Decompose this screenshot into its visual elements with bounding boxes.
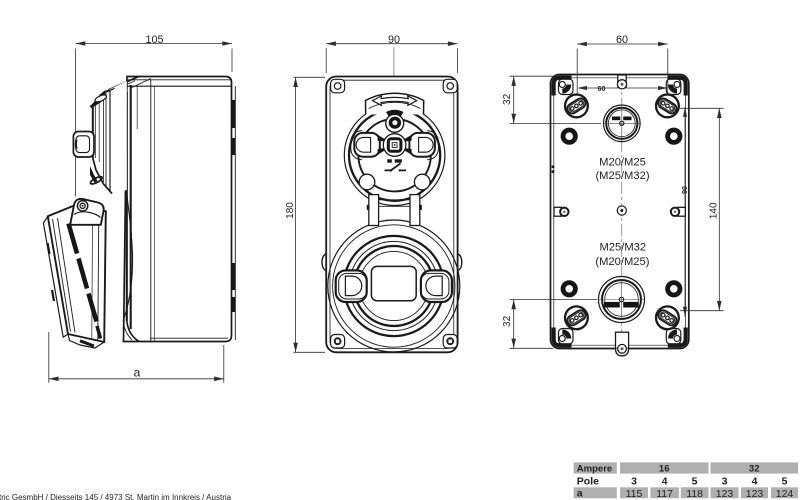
svg-text:4: 4 [752, 475, 758, 487]
svg-text:5: 5 [692, 475, 698, 487]
svg-text:4: 4 [662, 475, 668, 487]
svg-text:115: 115 [626, 488, 643, 500]
svg-text:tric GesmbH / Diesseits 145 /: tric GesmbH / Diesseits 145 / 4973 St. M… [0, 493, 232, 500]
svg-text:M25/M32: M25/M32 [599, 242, 646, 254]
svg-text:123: 123 [746, 488, 764, 500]
svg-text:Ampere: Ampere [577, 464, 612, 475]
svg-text:32: 32 [502, 93, 513, 105]
svg-text:3: 3 [722, 475, 728, 487]
svg-text:118: 118 [686, 488, 703, 500]
svg-text:124: 124 [776, 488, 794, 500]
svg-text:180: 180 [285, 202, 296, 219]
svg-text:(M20/M25): (M20/M25) [595, 256, 649, 268]
svg-text:(M25/M32): (M25/M32) [595, 170, 649, 182]
svg-text:140: 140 [709, 202, 720, 219]
svg-text:5: 5 [782, 475, 788, 487]
svg-text:a: a [134, 365, 141, 379]
svg-text:M20/M25: M20/M25 [599, 156, 646, 168]
svg-text:32: 32 [749, 464, 760, 475]
svg-text:60: 60 [616, 34, 628, 46]
svg-text:90: 90 [682, 186, 689, 194]
svg-text:117: 117 [656, 488, 673, 500]
svg-text:16: 16 [659, 464, 670, 475]
svg-text:105: 105 [145, 34, 163, 46]
svg-text:Pole: Pole [577, 475, 599, 487]
svg-text:a: a [577, 487, 583, 499]
svg-text:90: 90 [388, 34, 400, 46]
svg-text:123: 123 [716, 488, 734, 500]
svg-text:3: 3 [631, 475, 637, 487]
svg-text:32: 32 [502, 315, 513, 327]
svg-text:60: 60 [598, 86, 606, 93]
